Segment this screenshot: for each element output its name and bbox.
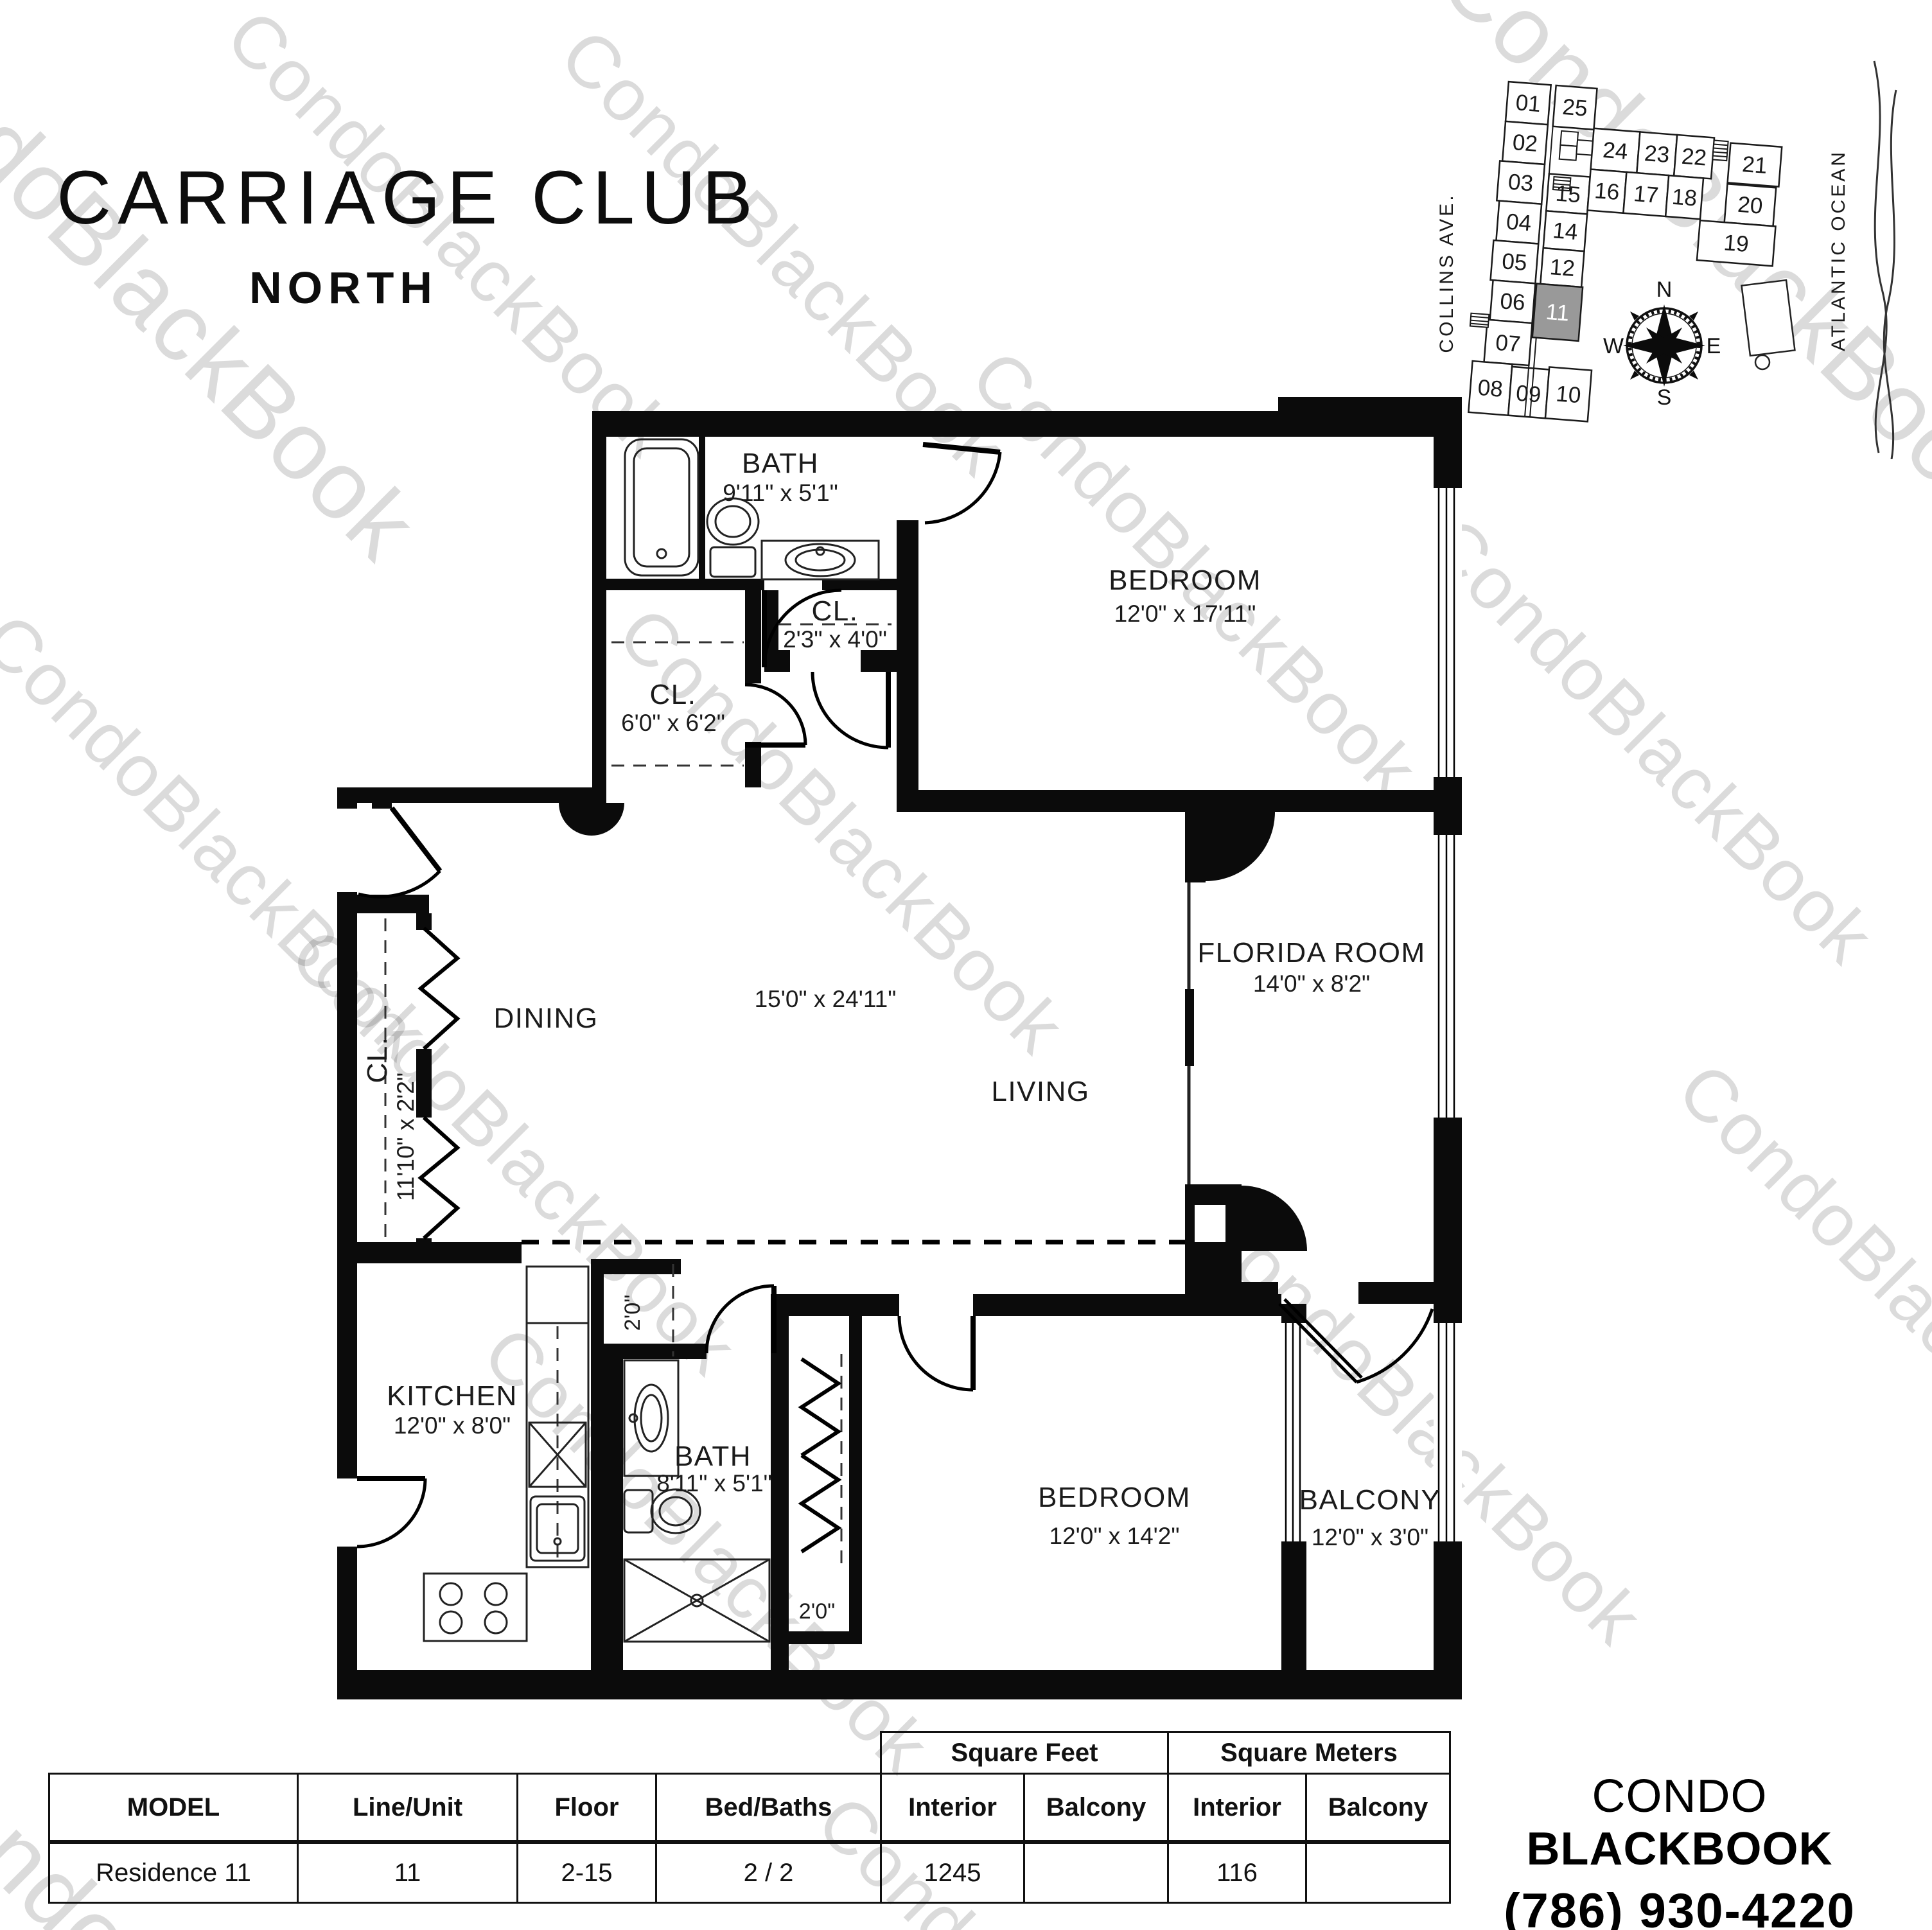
range-icon [424,1574,527,1641]
toilet-icon [707,498,759,577]
cell-interior-sqft: 1245 [881,1842,1024,1903]
table-group-sqft: Square Feet [881,1732,1168,1774]
svg-text:22: 22 [1681,144,1708,171]
room-label-bath-bottom: BATH [674,1441,751,1472]
svg-text:14'0" x 8'2": 14'0" x 8'2" [1253,970,1370,997]
svg-text:S: S [1657,385,1672,410]
floorplan-page: CondoBlackBook CondoBlackBook CondoBlack… [0,0,1932,1930]
bathtub-icon [625,439,698,575]
brand-phone: (786) 930-4220 [1464,1883,1895,1930]
svg-text:9'11" x 5'1": 9'11" x 5'1" [723,480,838,506]
svg-text:8'11" x 5'1": 8'11" x 5'1" [656,1470,772,1496]
svg-text:W: W [1603,334,1624,358]
footer-brand: CONDO BLACKBOOK (786) 930-4220 [1464,1770,1895,1930]
room-label-bath-top: BATH [742,448,819,479]
table-col-interior-sqft: Interior [881,1774,1024,1843]
table-col-interior-sqm: Interior [1168,1774,1306,1843]
svg-text:12'0" x 3'0": 12'0" x 3'0" [1312,1524,1428,1550]
room-label-florida: FLORIDA ROOM [1197,937,1425,969]
windows [1281,488,1462,1541]
room-label-bedroom-bottom: BEDROOM [1038,1482,1191,1513]
table-col-balcony-sqft: Balcony [1024,1774,1168,1843]
sink-icon [762,541,879,579]
svg-text:6'0" x 6'2": 6'0" x 6'2" [621,710,725,736]
room-label-closet-small: CL. [812,595,859,627]
svg-text:06: 06 [1499,288,1526,315]
floor-plan: BATH 9'11" x 5'1" CL. 2'3" x 4'0" CL. 6'… [334,379,1529,1728]
svg-text:02: 02 [1512,130,1539,157]
table-col-model: MODEL [49,1774,298,1843]
pool-building-icon [1742,280,1795,369]
svg-text:20: 20 [1737,192,1764,219]
svg-text:10: 10 [1555,381,1582,408]
building-subtitle: NORTH [193,262,495,313]
refrigerator-icon [527,1267,588,1323]
room-label-bedroom-top: BEDROOM [1109,565,1261,596]
svg-text:E: E [1707,334,1721,358]
svg-text:17: 17 [1633,181,1660,208]
table-col-line-unit: Line/Unit [298,1774,518,1843]
svg-text:15: 15 [1554,180,1581,207]
svg-text:24: 24 [1602,137,1629,164]
room-label-closet-left: CL. [362,1037,393,1083]
cell-line-unit: 11 [298,1842,518,1903]
spec-table: Square Feet Square Meters MODEL Line/Uni… [48,1731,1451,1904]
watermark: CondoBlackBook [1662,1047,1932,1527]
table-row: Residence 11 11 2-15 2 / 2 1245 116 [49,1842,1450,1903]
ocean-label: ATLANTIC OCEAN [1828,150,1849,351]
cell-bed-baths: 2 / 2 [656,1842,881,1903]
table-col-bed-baths: Bed/Baths [656,1774,881,1843]
svg-text:21: 21 [1741,152,1768,179]
svg-text:19: 19 [1723,230,1750,257]
svg-text:25: 25 [1561,94,1588,121]
svg-text:12: 12 [1549,254,1576,281]
svg-text:12'0" x 17'11": 12'0" x 17'11" [1114,601,1256,627]
svg-text:23: 23 [1644,141,1671,168]
svg-text:11'10" x 2'2": 11'10" x 2'2" [392,1073,419,1201]
sink-icon [624,1360,678,1476]
room-label-kitchen: KITCHEN [387,1380,518,1412]
brand-bold: BLACKBOOK [1527,1823,1833,1875]
svg-text:18: 18 [1671,184,1698,211]
table-col-balcony-sqm: Balcony [1306,1774,1450,1843]
svg-text:16: 16 [1594,178,1620,205]
cell-floor: 2-15 [518,1842,656,1903]
table-col-floor: Floor [518,1774,656,1843]
shower-icon [624,1559,769,1642]
brand-regular: CONDO [1592,1771,1768,1822]
living-dims: 15'0" x 24'11" [755,986,897,1012]
svg-text:11: 11 [1545,299,1570,326]
cell-balcony-sqm [1306,1842,1450,1903]
svg-text:04: 04 [1506,209,1532,236]
shoreline-icon [1874,61,1896,459]
svg-text:N: N [1656,277,1673,302]
closet-b-dims: 2'0" [799,1599,835,1624]
room-label-closet-hall: CL. [650,679,697,710]
svg-text:14: 14 [1552,218,1579,245]
street-label: COLLINS AVE. [1436,193,1457,353]
svg-text:05: 05 [1501,249,1528,276]
building-title: CARRIAGE CLUB [57,154,759,241]
closet-a-dims: 2'0" [620,1295,645,1331]
cell-balcony-sqft [1024,1842,1168,1903]
svg-text:01: 01 [1515,90,1541,117]
cell-model: Residence 11 [49,1842,298,1903]
svg-text:12'0" x 8'0": 12'0" x 8'0" [394,1412,511,1439]
svg-text:12'0" x 14'2": 12'0" x 14'2" [1049,1523,1180,1549]
svg-text:03: 03 [1507,170,1534,197]
table-group-sqm: Square Meters [1168,1732,1450,1774]
cell-interior-sqm: 116 [1168,1842,1306,1903]
room-label-dining: DINING [494,1003,599,1034]
svg-text:07: 07 [1495,330,1522,357]
room-label-living: LIVING [991,1076,1089,1107]
svg-text:2'3" x 4'0": 2'3" x 4'0" [783,626,887,653]
room-label-balcony: BALCONY [1299,1484,1441,1516]
compass-rose-icon: N E S W [1603,277,1721,410]
